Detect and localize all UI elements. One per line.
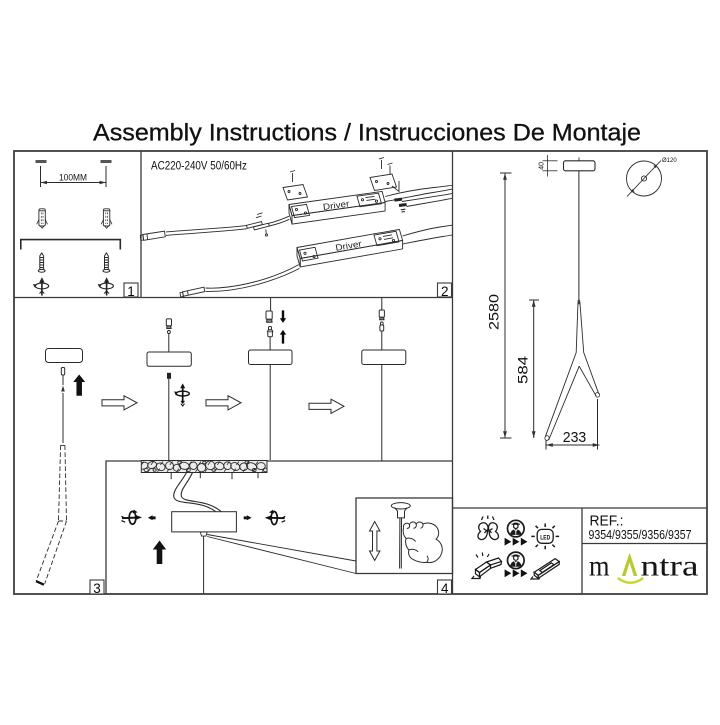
svg-text:AC220-240V 50/60Hz: AC220-240V 50/60Hz [151, 161, 247, 173]
svg-text:233: 233 [563, 430, 587, 446]
svg-text:2580: 2580 [486, 294, 502, 330]
svg-text:m: m [589, 549, 610, 582]
svg-text:Assembly Instructions / Instru: Assembly Instructions / Instrucciones De… [93, 120, 641, 147]
svg-text:Ø120: Ø120 [662, 158, 677, 164]
svg-text:4: 4 [441, 581, 449, 596]
svg-text:1: 1 [127, 284, 135, 299]
svg-text:9354/9355/9356/9357: 9354/9355/9356/9357 [589, 528, 692, 542]
svg-text:40: 40 [539, 162, 546, 170]
svg-text:584: 584 [515, 356, 531, 384]
svg-text:ntra: ntra [641, 549, 699, 582]
svg-text:2: 2 [441, 284, 449, 299]
svg-text:LED: LED [540, 536, 551, 542]
svg-text:3: 3 [93, 581, 101, 596]
svg-text:100MM: 100MM [59, 173, 87, 184]
